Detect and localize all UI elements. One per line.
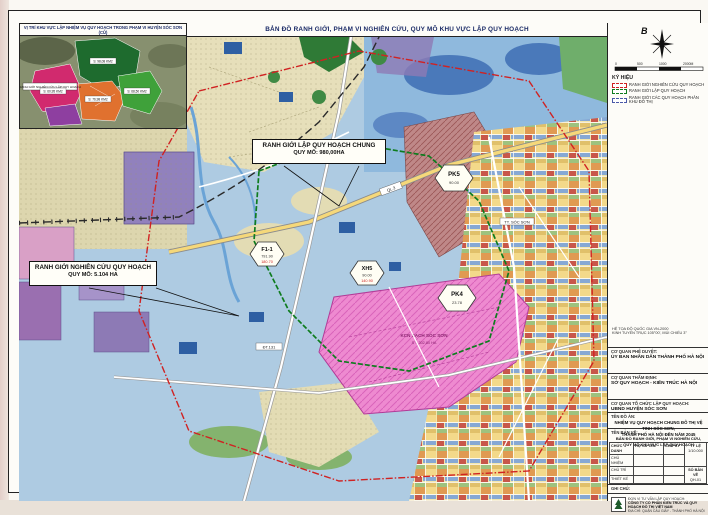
inset-area-chip-darkgreen: S: 98,08 KM2 <box>90 58 116 64</box>
svg-text:S: 60,95 KM2: S: 60,95 KM2 <box>43 90 63 94</box>
callout-study-line2: QUY MÔ: 5.104 HA <box>32 272 154 279</box>
north-label: B <box>641 26 648 36</box>
svg-text:PK5: PK5 <box>448 172 460 178</box>
callout-study-line1: RANH GIỚI NGHIÊN CỨU QUY HOẠCH <box>32 264 154 272</box>
inset-area-chip-orange: S: 76,98 KM2 <box>85 96 111 102</box>
svg-text:PK4: PK4 <box>451 292 463 298</box>
svg-text:791.90: 791.90 <box>261 255 273 259</box>
scale-tick: 2000M <box>683 62 694 66</box>
scanned-planning-map-sheet: KCN SẠCH SÓC SƠN S = 302,80 HA <box>0 0 708 500</box>
svg-text:S: 98,08 KM2: S: 98,08 KM2 <box>93 60 113 64</box>
inset-map: RANH GIỚI NGHIÊN CỨU LẬP QUY HOẠCH S: 98… <box>20 36 186 128</box>
legend-item-planning: RANH GIỚI LẬP QUY HOẠCH <box>612 89 706 94</box>
svg-text:140.90: 140.90 <box>361 279 373 283</box>
inset-title-text: VỊ TRÍ KHU VỰC LẬP NHIỆM VỤ QUY HOẠCH TR… <box>20 25 186 35</box>
project-name-section: TÊN ĐỒ ÁN: NHIỆM VỤ QUY HOẠCH CHUNG ĐÔ T… <box>608 412 708 428</box>
svg-text:S: 76,98 KM2: S: 76,98 KM2 <box>88 98 108 102</box>
inset-title-bar: VỊ TRÍ KHU VỰC LẬP NHIỆM VỤ QUY HOẠCH TR… <box>20 24 186 36</box>
svg-text:S: 68,50 KM2: S: 68,50 KM2 <box>127 90 147 94</box>
inset-area-chip-green: S: 68,50 KM2 <box>124 88 150 94</box>
signature-table: CHỨC DANH HỌ VÀ TÊN CHỮ KÝ TỶ LỆ 1/10.00… <box>609 442 708 484</box>
legend-symbol-planning-boundary <box>612 89 627 94</box>
svg-text:90.00: 90.00 <box>362 274 372 278</box>
road-label-dt131: ĐT.131 <box>263 345 276 350</box>
study-boundary-callout: RANH GIỚI NGHIÊN CỨU QUY HOẠCH QUY MÔ: 5… <box>29 261 157 286</box>
legend-symbol-study-boundary <box>612 83 627 88</box>
remark-section: GHI CHÚ: <box>608 484 708 493</box>
scale-cell: TỶ LỆ 1/10.000 <box>685 443 707 467</box>
map-title-text: BẢN ĐỒ RANH GIỚI, PHẠM VI NGHIÊN CỨU, QU… <box>265 26 529 33</box>
svg-text:23.78: 23.78 <box>452 300 463 305</box>
approve-section: CƠ QUAN PHÊ DUYỆT: ỦY BAN NHÂN DÂN THÀNH… <box>608 347 708 373</box>
north-arrow-icon: B <box>632 25 686 61</box>
title-block: CƠ QUAN PHÊ DUYỆT: ỦY BAN NHÂN DÂN THÀNH… <box>608 347 708 515</box>
scale-tick: 0 <box>615 62 617 66</box>
svg-text:180.70: 180.70 <box>261 260 273 264</box>
industrial-zone-area: S = 302,80 HA <box>412 341 437 345</box>
legend: KÝ HIỆU RANH GIỚI NGHIÊN CỨU QUY HOẠCH R… <box>612 75 706 106</box>
appraise-section: CƠ QUAN THẨM ĐỊNH: SỞ QUY HOẠCH - KIẾN T… <box>608 373 708 399</box>
location-inset: VỊ TRÍ KHU VỰC LẬP NHIỆM VỤ QUY HOẠCH TR… <box>19 23 187 129</box>
map-title-bar: BẢN ĐỒ RANH GIỚI, PHẠM VI NGHIÊN CỨU, QU… <box>187 23 607 37</box>
side-panel: B 0 500 1000 2000M KÝ HIỆU RANH GIỚI NGH… <box>607 23 708 501</box>
svg-text:90.00: 90.00 <box>449 180 460 185</box>
sheet-frame: KCN SẠCH SÓC SƠN S = 302,80 HA <box>8 10 701 493</box>
scale-tick: 500 <box>637 62 643 66</box>
scale-tick: 1000 <box>659 62 667 66</box>
svg-text:XH5: XH5 <box>362 266 373 272</box>
callout-main-line2: QUY MÔ: 980,00HA <box>255 150 383 157</box>
legend-item-study: RANH GIỚI NGHIÊN CỨU QUY HOẠCH <box>612 83 706 88</box>
town-label: TT. SÓC SƠN <box>504 220 530 225</box>
sheet-number-cell: SỐ BẢN VẼ QH-01 <box>685 467 707 484</box>
scale-bar: 0 500 1000 2000M <box>613 61 705 73</box>
company-logo <box>611 497 626 512</box>
organizer-section: CƠ QUAN TỔ CHỨC LẬP QUY HOẠCH: UBND HUYỆ… <box>608 399 708 412</box>
planning-boundary-callout: RANH GIỚI LẬP QUY HOẠCH CHUNG QUY MÔ: 98… <box>252 139 386 164</box>
legend-item-subzones: RANH GIỚI CÁC QUY HOẠCH PHÂN KHU ĐÔ THỊ <box>612 96 706 105</box>
main-map-area: KCN SẠCH SÓC SƠN S = 302,80 HA <box>19 23 607 501</box>
coordinate-note: HỆ TỌA ĐỘ QUỐC GIA VN-2000 KINH TUYẾN TR… <box>612 327 706 335</box>
industrial-zone-label: KCN SẠCH SÓC SƠN <box>400 331 448 338</box>
legend-symbol-subzone-boundary <box>612 98 627 103</box>
legend-title: KÝ HIỆU <box>612 75 706 81</box>
inset-area-chip-crimson: S: 60,95 KM2 <box>40 88 66 94</box>
callout-main-line1: RANH GIỚI LẬP QUY HOẠCH CHUNG <box>255 142 383 150</box>
svg-text:F1-1: F1-1 <box>261 247 272 253</box>
company-section: ĐƠN VỊ TƯ VẤN LẬP QUY HOẠCH: CÔNG TY CỔ … <box>608 493 708 515</box>
